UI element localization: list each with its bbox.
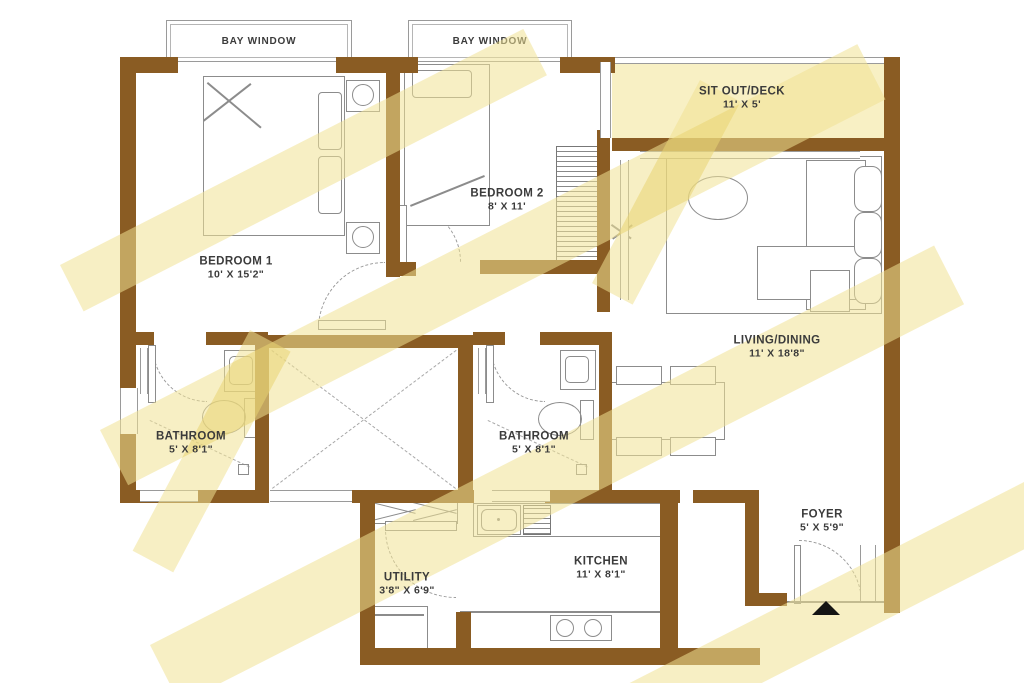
deck-railing (615, 57, 884, 64)
side-table (810, 270, 850, 312)
deck-side-window (600, 62, 611, 138)
wall-void-left (255, 335, 269, 503)
bay-window-2: BAY WINDOW (408, 20, 572, 62)
wall-deck (612, 138, 884, 151)
entrance-arrow-icon (812, 601, 840, 615)
floor-drain (238, 464, 249, 475)
bathroom-2-vent-window (492, 490, 550, 502)
drain-board (523, 505, 551, 535)
sit-out-deck-label: SIT OUT/DECK 11' X 5' (699, 84, 785, 112)
void-window (270, 490, 352, 502)
floor-plan: BAY WINDOW BAY WINDOW SIT OUT/DECK 11' X… (0, 0, 1024, 683)
bedroom-1-label: BEDROOM 1 10' X 15'2" (199, 254, 272, 282)
floor-drain (576, 464, 587, 475)
burner-icon (556, 619, 574, 637)
wall-void-right (458, 335, 473, 503)
foyer-label: FOYER 5' X 5'9" (800, 507, 844, 535)
shower-icon (140, 348, 148, 394)
bathroom-1-window (120, 388, 138, 434)
wall-outer-bottom (360, 648, 760, 665)
wall-outer-left (120, 57, 136, 503)
washbasin-bowl (229, 356, 253, 385)
sofa-cushion (854, 166, 882, 212)
wall-outer-right (884, 57, 900, 613)
lamp-icon (352, 84, 374, 106)
dining-chair (670, 437, 716, 456)
utility-label: UTILITY 3'8" X 6'9" (379, 570, 435, 598)
kitchen-label: KITCHEN 11' X 8'1" (574, 554, 628, 582)
toilet-tank (580, 400, 594, 440)
lamp-icon (352, 226, 374, 248)
burner-icon (584, 619, 602, 637)
door-leaf-entrance (794, 545, 801, 604)
wall-kitchen-top (545, 490, 680, 503)
living-dining-label: LIVING/DINING 11' X 18'8" (734, 333, 821, 361)
washing-machine (368, 606, 428, 650)
wall-bedroom-divider (386, 57, 400, 277)
wall-foyer-stub (745, 593, 787, 606)
bed-1-pillow (318, 156, 342, 214)
door-swing-bathroom-2 (490, 345, 545, 402)
sliding-door (620, 160, 629, 300)
wall-bath1-top (120, 332, 154, 345)
bay-window-1: BAY WINDOW (166, 20, 352, 62)
door-swing-bedroom-1 (318, 262, 385, 329)
wall-bath2-top (473, 332, 505, 345)
door-leaf-utility (385, 521, 457, 531)
washbasin-bowl (565, 356, 589, 383)
door-leaf-bathroom-1 (148, 345, 156, 403)
bed-2-pillow (412, 70, 472, 98)
bed-1-pillow (318, 92, 342, 150)
bay-window-2-label: BAY WINDOW (453, 36, 528, 47)
wall-utility-left (360, 490, 375, 665)
bay-window-1-label: BAY WINDOW (222, 36, 297, 47)
door-swing-entrance (799, 540, 862, 603)
dining-chair (670, 366, 716, 385)
bathroom-2-label: BATHROOM 5' X 8'1" (499, 429, 569, 457)
wall-bath2-right (599, 332, 612, 503)
door-leaf-bedroom-1 (318, 320, 386, 330)
wall (336, 57, 418, 73)
wall-stub (386, 262, 416, 276)
door-swing-bathroom-1 (152, 345, 207, 402)
bathroom-1-vent-window (140, 490, 198, 502)
door-leaf-bathroom-2 (486, 345, 494, 403)
coffee-table (688, 176, 748, 220)
wall-foyer-left (745, 490, 759, 606)
kitchen-counter-edge (460, 611, 660, 613)
dining-chair (616, 437, 662, 456)
bathroom-1-label: BATHROOM 5' X 8'1" (156, 429, 226, 457)
dining-table (609, 382, 725, 440)
wall-bedroom2-bottom (480, 260, 598, 274)
shoe-cabinet (860, 545, 876, 601)
washing-machine-panel (370, 614, 424, 616)
living-window (640, 151, 860, 159)
wall-void-top (266, 335, 470, 348)
dining-chair (616, 366, 662, 385)
wall-kitchen-right (660, 503, 678, 648)
wall-bedroom2-right (597, 130, 610, 312)
sofa-cushion (854, 212, 882, 258)
sofa-cushion (854, 258, 882, 304)
sink-drain (497, 518, 500, 521)
bedroom-2-label: BEDROOM 2 8' X 11' (470, 186, 543, 214)
wardrobe (556, 146, 600, 268)
shower-icon (478, 348, 486, 394)
